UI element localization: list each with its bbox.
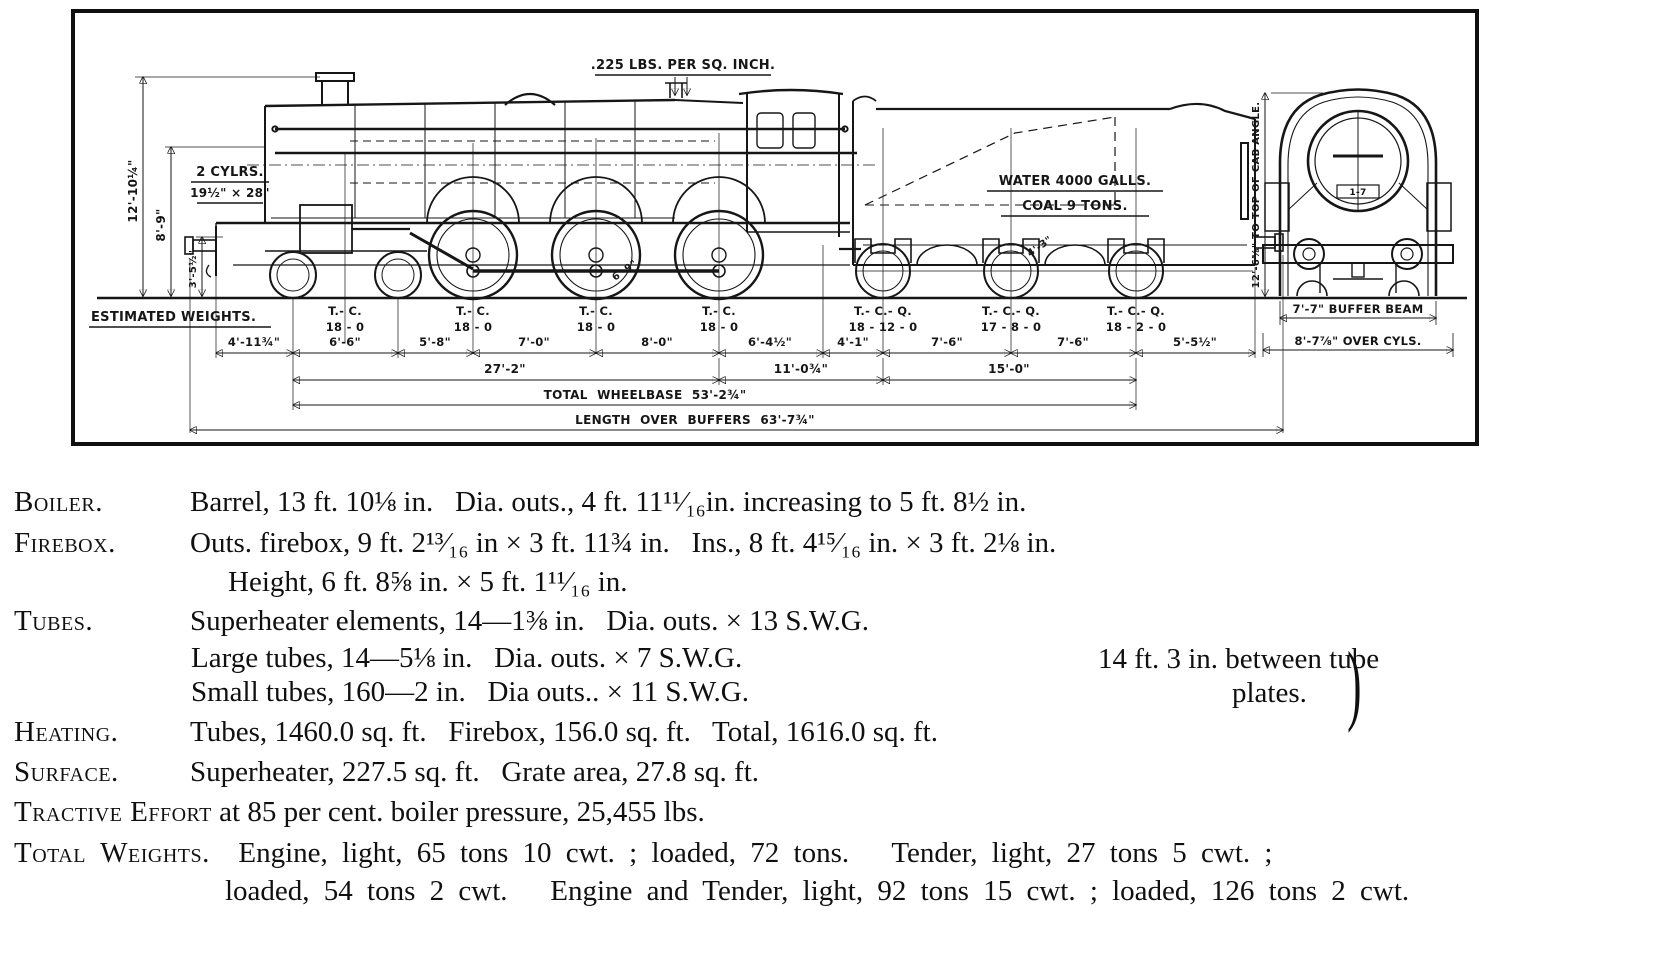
- spec-value-large-tubes: Large tubes, 14—5⅛ in. Dia. outs. × 7 S.…: [191, 642, 742, 674]
- total-weights-term: Total Weights.: [14, 837, 210, 869]
- spec-term-boiler: Boiler.: [14, 487, 190, 519]
- tractive-effort-value: at 85 per cent. boiler pressure, 25,455 …: [212, 796, 705, 828]
- spec-row-boiler: Boiler.Barrel, 13 ft. 10⅛ in. Dia. outs.…: [14, 487, 1026, 519]
- spec-row-surface: Surface.Superheater, 227.5 sq. ft. Grate…: [14, 757, 759, 789]
- spec-row-tubes: Tubes.Superheater elements, 14—1⅜ in. Di…: [14, 606, 869, 638]
- spec-row-small-tubes: Small tubes, 160—2 in. Dia outs.. × 11 S…: [191, 677, 749, 709]
- spec-row-firebox-height: Height, 6 ft. 8⅝ in. × 5 ft. 1¹¹⁄₁₆ in.: [228, 567, 628, 599]
- spec-value-firebox-height: Height, 6 ft. 8⅝ in. × 5 ft. 1¹¹⁄₁₆ in.: [228, 566, 628, 598]
- spec-row-total-weights: Total Weights. Engine, light, 65 tons 10…: [14, 838, 1272, 870]
- tube-plates-note-line2: plates.: [1232, 677, 1307, 710]
- tractive-effort-term: Tractive Effort: [14, 796, 212, 828]
- spec-term-heating: Heating.: [14, 717, 190, 749]
- tube-plates-note-line1: 14 ft. 3 in. between tube: [1098, 643, 1379, 676]
- spec-value-surface: Superheater, 227.5 sq. ft. Grate area, 2…: [190, 756, 759, 788]
- spec-value-firebox: Outs. firebox, 9 ft. 2¹³⁄₁₆ in × 3 ft. 1…: [190, 527, 1056, 559]
- spec-value-small-tubes: Small tubes, 160—2 in. Dia outs.. × 11 S…: [191, 676, 749, 708]
- spec-term-surface: Surface.: [14, 757, 190, 789]
- spec-value-tubes: Superheater elements, 14—1⅜ in. Dia. out…: [190, 605, 869, 637]
- spec-value-boiler: Barrel, 13 ft. 10⅛ in. Dia. outs., 4 ft.…: [190, 486, 1026, 518]
- total-weights-line1: Engine, light, 65 tons 10 cwt. ; loaded,…: [210, 837, 1273, 869]
- spec-term-tubes: Tubes.: [14, 606, 190, 638]
- spec-row-heating: Heating.Tubes, 1460.0 sq. ft. Firebox, 1…: [14, 717, 938, 749]
- spec-value-heating: Tubes, 1460.0 sq. ft. Firebox, 156.0 sq.…: [190, 716, 938, 748]
- spec-term-firebox: Firebox.: [14, 528, 190, 560]
- total-weights-line2: loaded, 54 tons 2 cwt. Engine and Tender…: [225, 875, 1409, 907]
- spec-row-total-weights-cont: loaded, 54 tons 2 cwt. Engine and Tender…: [225, 876, 1409, 908]
- spec-row-large-tubes: Large tubes, 14—5⅛ in. Dia. outs. × 7 S.…: [191, 643, 742, 675]
- specification-text: Boiler.Barrel, 13 ft. 10⅛ in. Dia. outs.…: [0, 0, 1665, 977]
- spec-row-firebox: Firebox.Outs. firebox, 9 ft. 2¹³⁄₁₆ in ×…: [14, 528, 1056, 560]
- scanned-page: 6'-9": [0, 0, 1665, 977]
- spec-row-tractive-effort: Tractive Effort at 85 per cent. boiler p…: [14, 797, 705, 829]
